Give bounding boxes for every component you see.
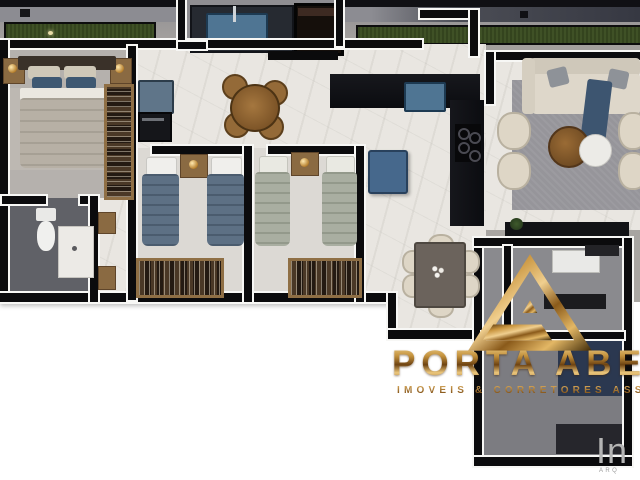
twin-bed-blue-duvet (142, 174, 179, 246)
plant-icon (510, 218, 523, 230)
brand-name: PORTA ABERTA (392, 344, 640, 384)
toilet-bowl (37, 221, 55, 251)
watermark-subtext: ARQ (599, 468, 619, 474)
gold-triangle-a-logo (468, 254, 594, 351)
brand-tagline: IMOVEIS & CORRETORES ASSOCIADOS (397, 385, 640, 396)
wall-kitchen-divider (486, 52, 494, 104)
wall-top-main (2, 40, 422, 48)
wall-laundry-left (178, 0, 185, 46)
twin-bed-green-duvet (255, 172, 290, 246)
burner-icon (469, 150, 481, 162)
hall-cabinet (98, 266, 116, 290)
kitchen-island (368, 150, 408, 194)
sink-drain-icon (72, 246, 77, 251)
table-lamp-icon (189, 160, 198, 169)
twin-bed-green-duvet (322, 172, 357, 246)
wall-bedrooms-divider (244, 146, 252, 302)
coffee-table-white (579, 134, 612, 167)
armchair (497, 152, 531, 190)
roof-vent (20, 9, 30, 17)
media-console (505, 222, 629, 236)
watermark-text: In (596, 430, 628, 472)
floorplan-render: PORTA ABERTA IMOVEIS & CORRETORES ASSOCI… (0, 0, 640, 480)
wall-bedroom2-top (152, 146, 248, 154)
bedroom3-wardrobe (288, 258, 362, 298)
sofa-armrest (522, 58, 535, 114)
laundry-shelf (268, 51, 338, 60)
table-lamp-icon (8, 64, 17, 73)
master-wardrobe (104, 84, 134, 200)
armchair (497, 112, 531, 150)
stove-oven (138, 112, 172, 142)
kitchen-sink (404, 82, 446, 112)
master-bed-duvet (20, 98, 116, 168)
table-lamp-icon (115, 64, 124, 73)
armchair (618, 152, 640, 190)
breakfast-table (230, 84, 280, 132)
wall-step-v (470, 10, 478, 56)
refrigerator (138, 80, 174, 114)
oven-handle-icon (142, 118, 164, 121)
roof-vent (520, 11, 528, 18)
hall-cabinet (98, 212, 116, 234)
garden-light (48, 31, 53, 35)
wall-laundry-right (336, 0, 343, 46)
wall-laundry-stub (178, 42, 206, 49)
bedroom2-wardrobe (136, 258, 224, 298)
twin-bed-blue-duvet (207, 174, 244, 246)
bath-vanity (58, 226, 94, 278)
washing-machine-top (298, 8, 334, 16)
laundry-faucet-icon (233, 6, 236, 22)
burner-icon (458, 142, 470, 154)
burner-icon (469, 132, 481, 144)
wall-master-bath-a (2, 196, 46, 204)
table-lamp-icon (300, 158, 309, 167)
table-flowers-icon (430, 264, 446, 280)
armchair (618, 112, 640, 150)
kitchen-counter-side (450, 100, 484, 226)
toilet (36, 208, 56, 221)
